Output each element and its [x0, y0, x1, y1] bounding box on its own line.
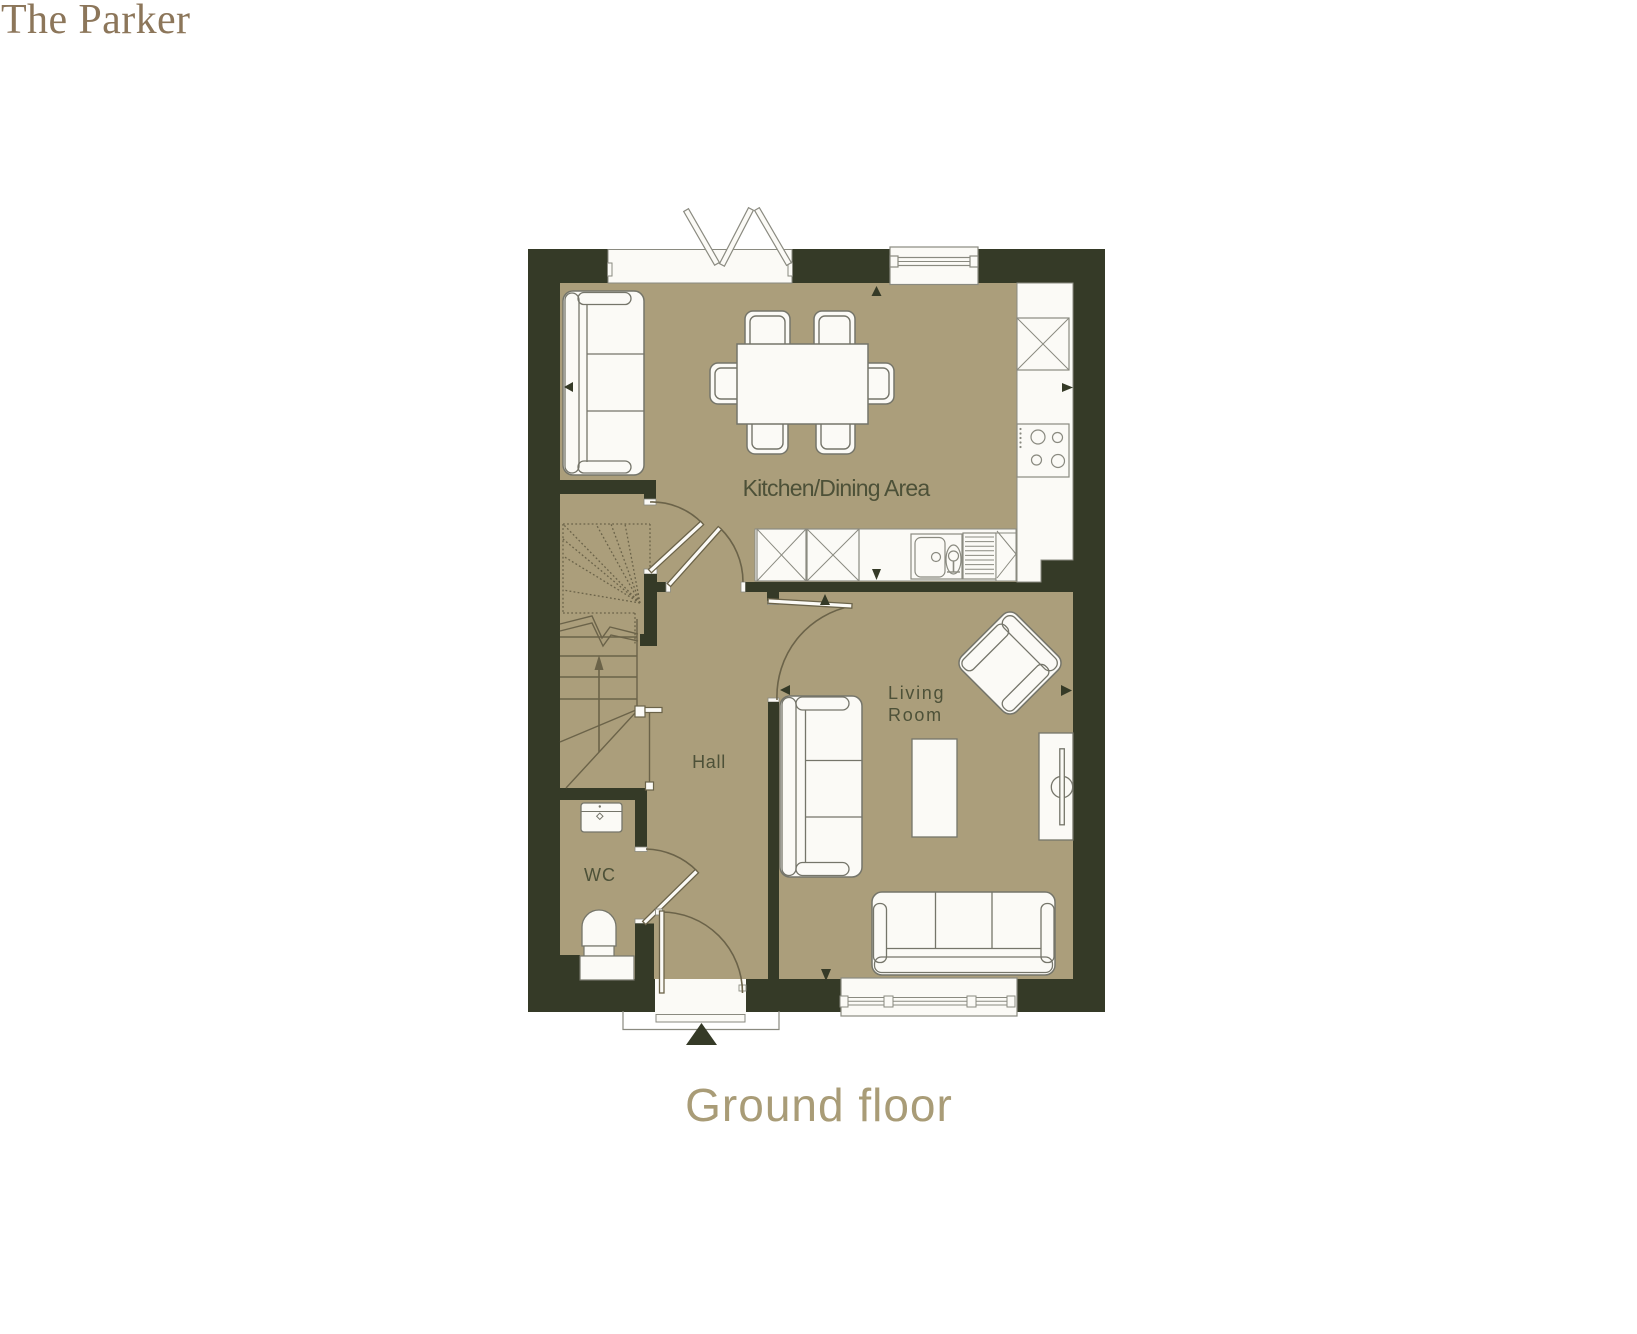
svg-text:Hall: Hall	[692, 752, 726, 772]
svg-text:Living: Living	[888, 683, 945, 703]
svg-text:WC: WC	[584, 865, 616, 885]
svg-text:Room: Room	[888, 705, 943, 725]
svg-text:Ground floor: Ground floor	[685, 1079, 953, 1131]
svg-text:The Parker: The Parker	[1, 0, 190, 43]
svg-text:Kitchen/Dining Area: Kitchen/Dining Area	[743, 475, 931, 501]
